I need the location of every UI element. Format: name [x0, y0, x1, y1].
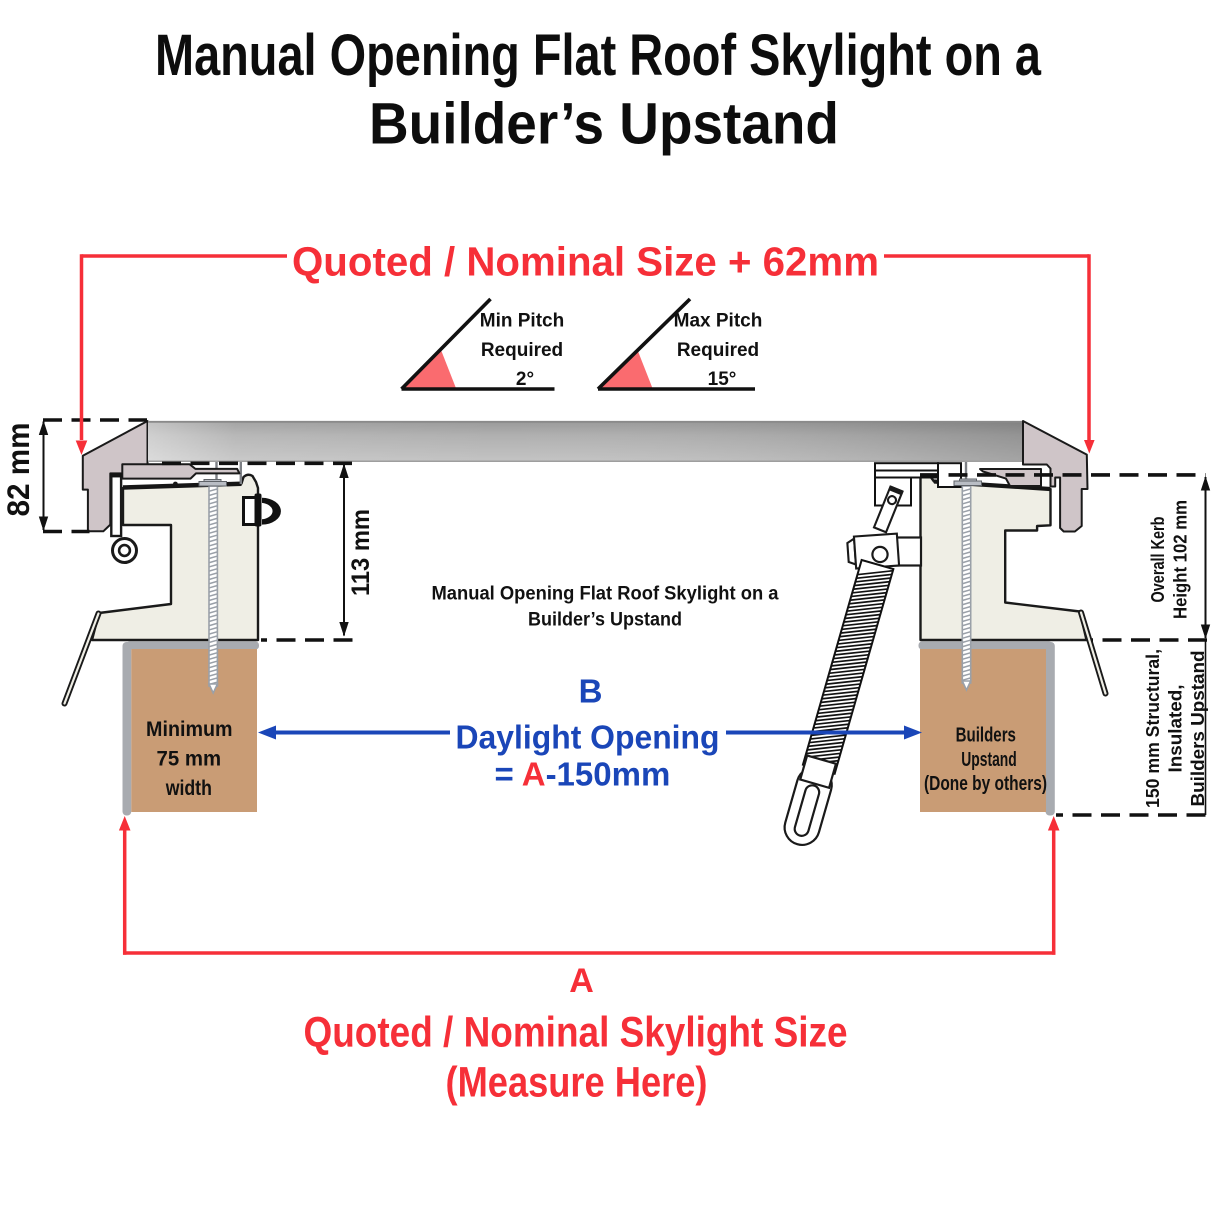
svg-text:82 mm: 82 mm: [0, 423, 36, 517]
svg-text:A: A: [569, 962, 594, 1000]
svg-text:Max Pitch: Max Pitch: [674, 311, 763, 332]
svg-text:2°: 2°: [516, 369, 534, 390]
svg-text:Minimum: Minimum: [146, 717, 233, 741]
svg-text:B: B: [579, 672, 603, 709]
svg-text:113 mm: 113 mm: [347, 509, 375, 596]
svg-text:Daylight Opening: Daylight Opening: [456, 718, 720, 755]
svg-text:Builders: Builders: [956, 725, 1016, 747]
svg-text:75 mm: 75 mm: [157, 746, 222, 770]
svg-text:Builder’s Upstand: Builder’s Upstand: [369, 92, 839, 157]
svg-text:Upstand: Upstand: [961, 749, 1017, 771]
svg-text:width: width: [165, 776, 212, 800]
svg-text:Min Pitch: Min Pitch: [480, 311, 564, 332]
svg-text:= A-150mm: = A-150mm: [495, 756, 671, 793]
svg-text:Manual Opening Flat Roof Skyli: Manual Opening Flat Roof Skylight on a: [155, 23, 1042, 88]
svg-text:Required: Required: [481, 340, 563, 361]
svg-text:Manual Opening Flat Roof Skyli: Manual Opening Flat Roof Skylight on a: [432, 584, 779, 605]
svg-text:(Measure Here): (Measure Here): [446, 1059, 708, 1107]
svg-text:Builder’s Upstand: Builder’s Upstand: [528, 610, 682, 631]
svg-text:Quoted / Nominal Size + 62mm: Quoted / Nominal Size + 62mm: [292, 239, 879, 285]
svg-text:Quoted / Nominal Skylight Size: Quoted / Nominal Skylight Size: [304, 1008, 848, 1056]
svg-text:Required: Required: [677, 340, 759, 361]
svg-text:(Done by others): (Done by others): [924, 773, 1047, 795]
svg-text:15°: 15°: [708, 369, 737, 390]
